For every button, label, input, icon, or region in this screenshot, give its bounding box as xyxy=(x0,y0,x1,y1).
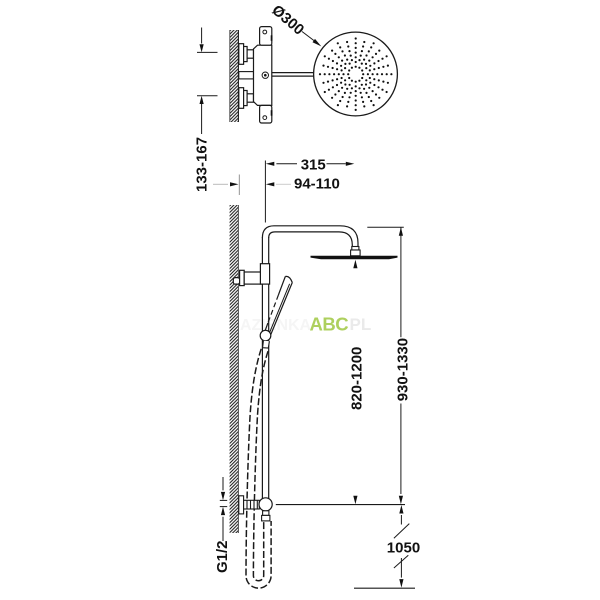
svg-text:1050: 1050 xyxy=(387,540,420,557)
svg-text:PL: PL xyxy=(350,315,372,334)
svg-text:315: 315 xyxy=(301,157,326,174)
svg-text:820-1200: 820-1200 xyxy=(349,347,366,410)
svg-text:G1/2: G1/2 xyxy=(214,540,231,573)
svg-text:ABC: ABC xyxy=(310,314,349,335)
svg-text:94-110: 94-110 xyxy=(294,176,340,193)
svg-text:133-167: 133-167 xyxy=(193,137,210,192)
svg-text:930-1330: 930-1330 xyxy=(394,338,411,401)
svg-text:AZIENKA: AZIENKA xyxy=(240,317,312,334)
